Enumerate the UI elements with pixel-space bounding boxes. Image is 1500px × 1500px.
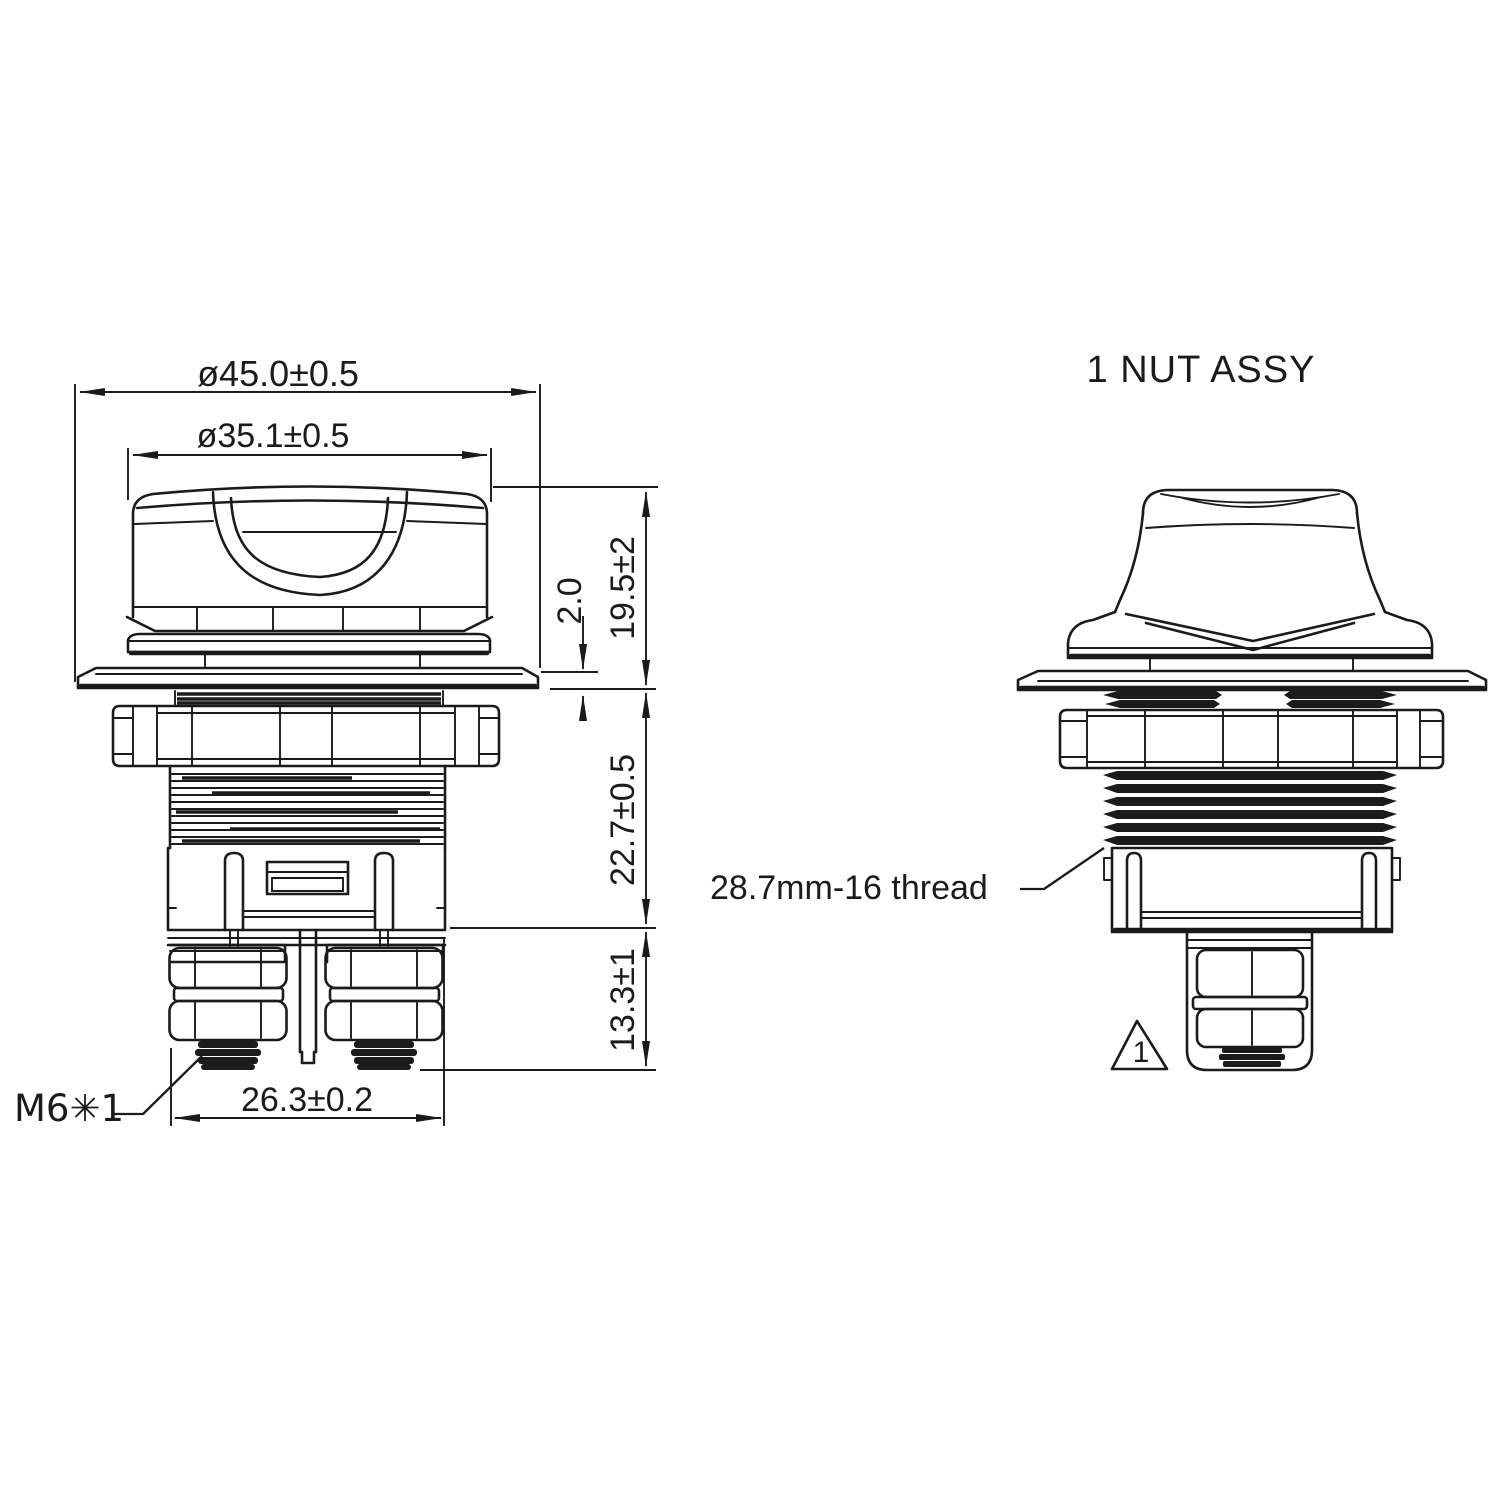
dim-knob-diameter: ø35.1±0.5 [197, 417, 350, 455]
dim-terminal-width: 26.3±0.2 [241, 1081, 373, 1119]
right-terminal-stud [326, 948, 443, 1070]
dim-stud-length: 13.3±1 [604, 948, 642, 1052]
drawing-sheet: ø45.0±0.5 ø35.1±0.5 19.5±2 2.0 22.7±0.5 … [0, 0, 1500, 1500]
label-mount-thread: 28.7mm-16 thread [710, 869, 988, 907]
label-stud-thread: M6✳1 [14, 1087, 124, 1130]
front-view [78, 487, 538, 1071]
technical-drawing: ø45.0±0.5 ø35.1±0.5 19.5±2 2.0 22.7±0.5 … [0, 0, 1500, 1500]
mount-thread [1103, 771, 1397, 845]
dim-knob-height: 19.5±2 [604, 536, 642, 640]
side-view [1018, 490, 1486, 1070]
left-terminal-stud [170, 948, 287, 1070]
flag-note-number: 1 [1133, 1036, 1150, 1069]
dim-plate-thickness: 2.0 [551, 577, 589, 624]
dimension-annotations [75, 384, 1104, 1126]
side-view-title: 1 NUT ASSY [1087, 349, 1316, 391]
dim-body-depth: 22.7±0.5 [604, 754, 642, 886]
dim-plate-diameter: ø45.0±0.5 [197, 353, 359, 394]
